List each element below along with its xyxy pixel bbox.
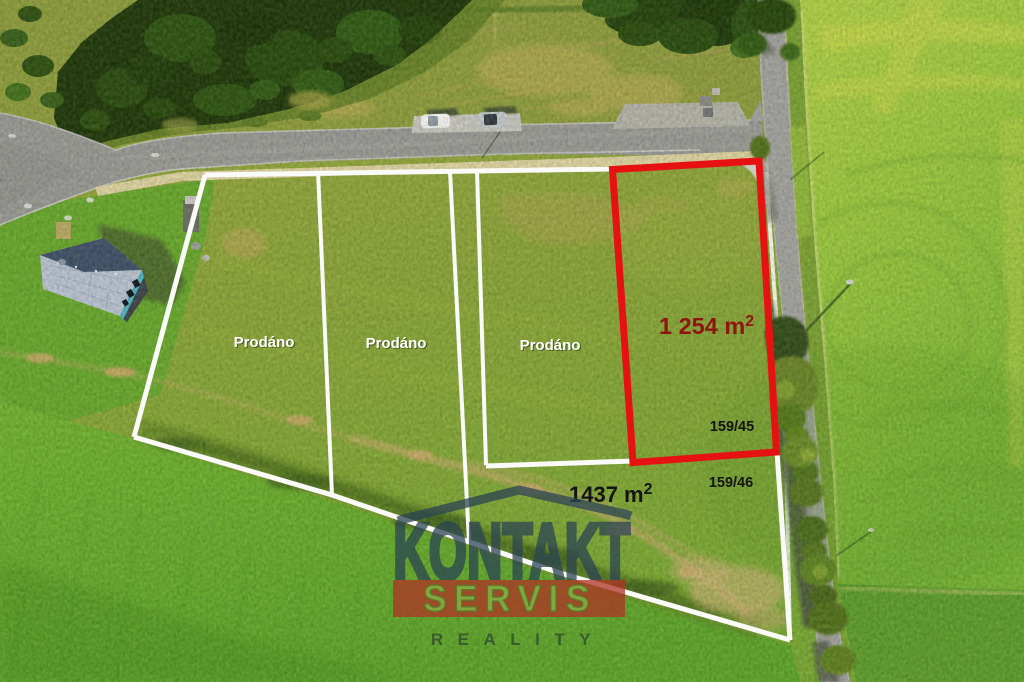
svg-text:159/45: 159/45	[710, 419, 754, 435]
svg-text:Prodáno: Prodáno	[366, 335, 427, 352]
svg-text:159/46: 159/46	[709, 475, 753, 491]
svg-text:1 254 m2: 1 254 m2	[659, 313, 754, 339]
svg-text:Prodáno: Prodáno	[520, 337, 581, 354]
svg-text:Prodáno: Prodáno	[234, 334, 295, 351]
svg-text:SERVIS: SERVIS	[423, 577, 597, 619]
svg-text:REALITY: REALITY	[431, 630, 605, 649]
